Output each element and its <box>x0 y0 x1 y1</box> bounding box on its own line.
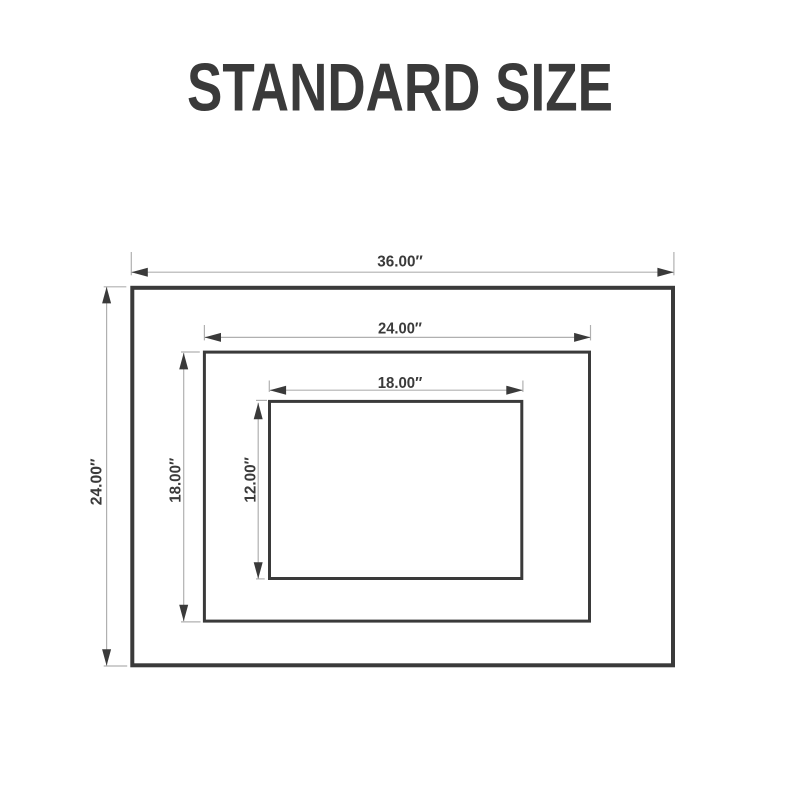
svg-text:12.00″: 12.00″ <box>243 457 260 503</box>
svg-text:STANDARD SIZE: STANDARD SIZE <box>187 50 613 126</box>
svg-text:24.00″: 24.00″ <box>378 321 422 338</box>
svg-text:24.00″: 24.00″ <box>89 458 106 505</box>
svg-text:18.00″: 18.00″ <box>378 375 423 392</box>
svg-text:18.00″: 18.00″ <box>167 457 184 502</box>
svg-text:36.00″: 36.00″ <box>377 253 423 270</box>
